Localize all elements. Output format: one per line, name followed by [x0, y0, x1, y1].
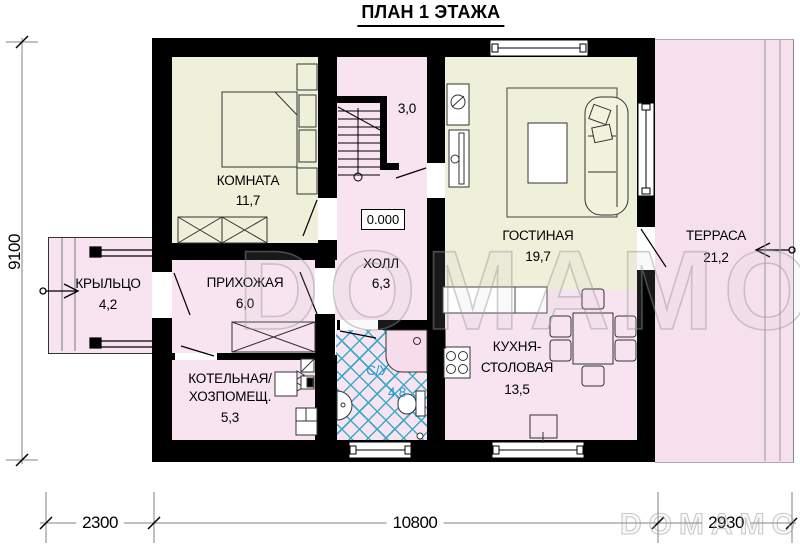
wall-outer-top — [152, 38, 655, 57]
room-label-bath: С/У — [366, 364, 387, 378]
wall-stair-right — [380, 96, 387, 170]
door-opening-living — [427, 163, 445, 198]
dimension-bottom-house: 10800 — [387, 514, 444, 532]
room-area-boiler: 5,3 — [221, 411, 239, 425]
wall-closet-stub — [387, 163, 399, 170]
door-opening-porch — [152, 272, 172, 318]
wall-boiler-bath — [315, 355, 337, 440]
room-label-boiler-line1: КОТЕЛЬНАЯ/ — [188, 372, 271, 386]
room-area-bath: 4,8 — [388, 386, 406, 400]
porch-floor — [48, 237, 157, 354]
bedroom-floor — [172, 57, 318, 243]
watermark-corner: DOMAMO — [620, 508, 800, 542]
floor-plan: ПЛАН 1 ЭТАЖА — [0, 0, 800, 545]
watermark-center: DOMAMO — [238, 226, 800, 355]
room-area-bedroom: 11,7 — [236, 194, 260, 208]
page-title: ПЛАН 1 ЭТАЖА — [357, 2, 504, 27]
room-label-kitchen-line2: СТОЛОВАЯ — [481, 361, 553, 375]
room-label-bedroom: КОМНАТА — [217, 174, 280, 188]
dimension-bottom-porch: 2300 — [76, 514, 124, 532]
room-label-porch: КРЫЛЬЦО — [75, 277, 140, 291]
wall-outer-bottom — [152, 440, 655, 462]
dimension-left-house: 9100 — [5, 222, 23, 282]
room-area-kitchen: 13,5 — [504, 383, 529, 397]
wall-stair-top — [330, 96, 387, 103]
room-area-stair-closet: 3,0 — [398, 102, 416, 116]
door-opening-boiler — [175, 353, 217, 360]
room-area-porch: 4,2 — [99, 298, 117, 312]
room-label-boiler-line2: ХОЗПОМЕЩ. — [189, 390, 271, 404]
